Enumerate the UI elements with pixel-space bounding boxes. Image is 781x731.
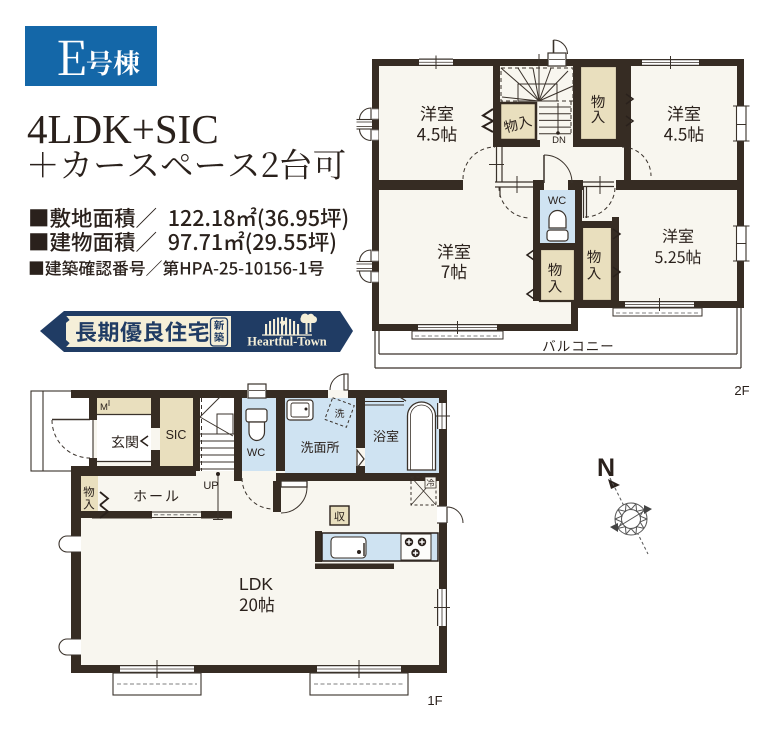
svg-text:N: N [597, 454, 615, 482]
svg-text:Heartful-Town: Heartful-Town [247, 335, 326, 349]
svg-text:SIC: SIC [166, 428, 187, 442]
svg-text:WC: WC [548, 195, 566, 207]
svg-text:UP: UP [203, 480, 218, 492]
svg-text:M: M [100, 402, 108, 413]
svg-text:WC: WC [247, 447, 265, 459]
svg-text:LDK: LDK [239, 574, 273, 594]
svg-text:2F: 2F [734, 383, 749, 398]
svg-text:DN: DN [552, 135, 566, 146]
svg-text:1F: 1F [427, 693, 442, 708]
svg-text:4LDK+SIC: 4LDK+SIC [27, 106, 219, 152]
